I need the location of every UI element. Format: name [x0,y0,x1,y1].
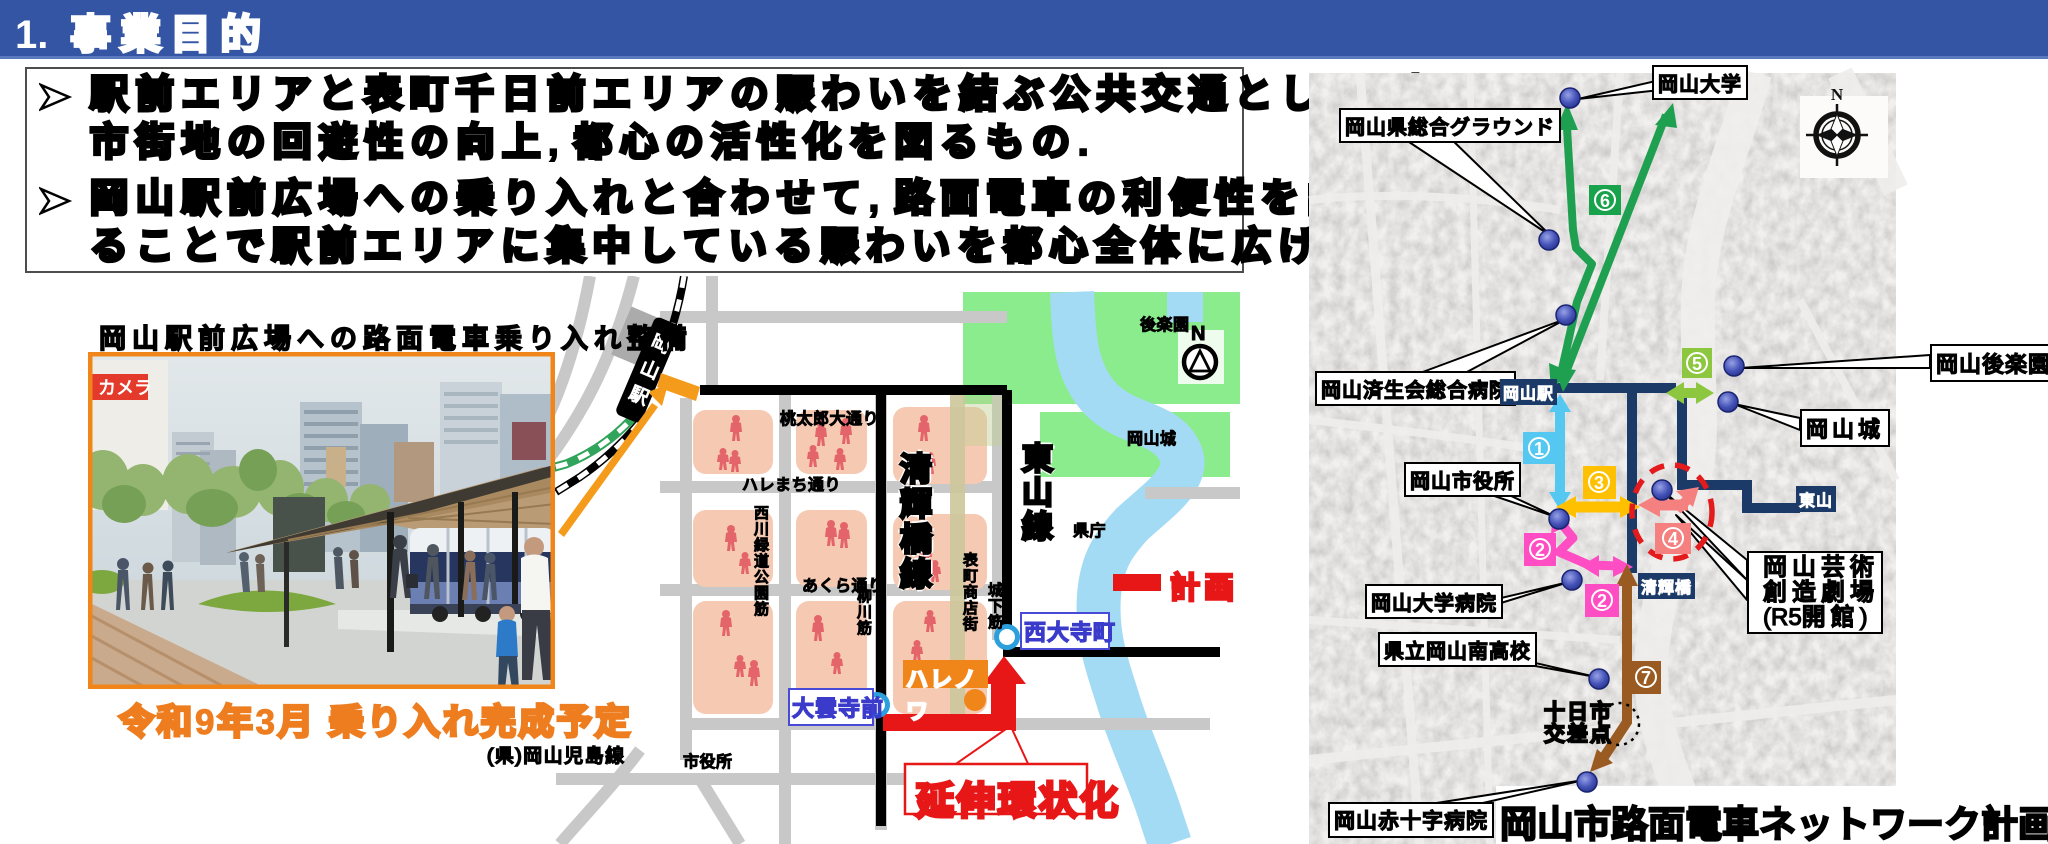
svg-text:1: 1 [1534,439,1544,459]
svg-text:2: 2 [1597,591,1607,611]
svg-text:7: 7 [1641,668,1651,688]
svg-text:N: N [1831,85,1844,104]
svg-text:3: 3 [1594,473,1604,493]
svg-text:2: 2 [1535,540,1545,560]
svg-text:カメラ: カメラ [98,378,152,398]
svg-text:5: 5 [1692,354,1702,374]
svg-text:6: 6 [1600,191,1610,211]
svg-text:4: 4 [1668,529,1678,549]
